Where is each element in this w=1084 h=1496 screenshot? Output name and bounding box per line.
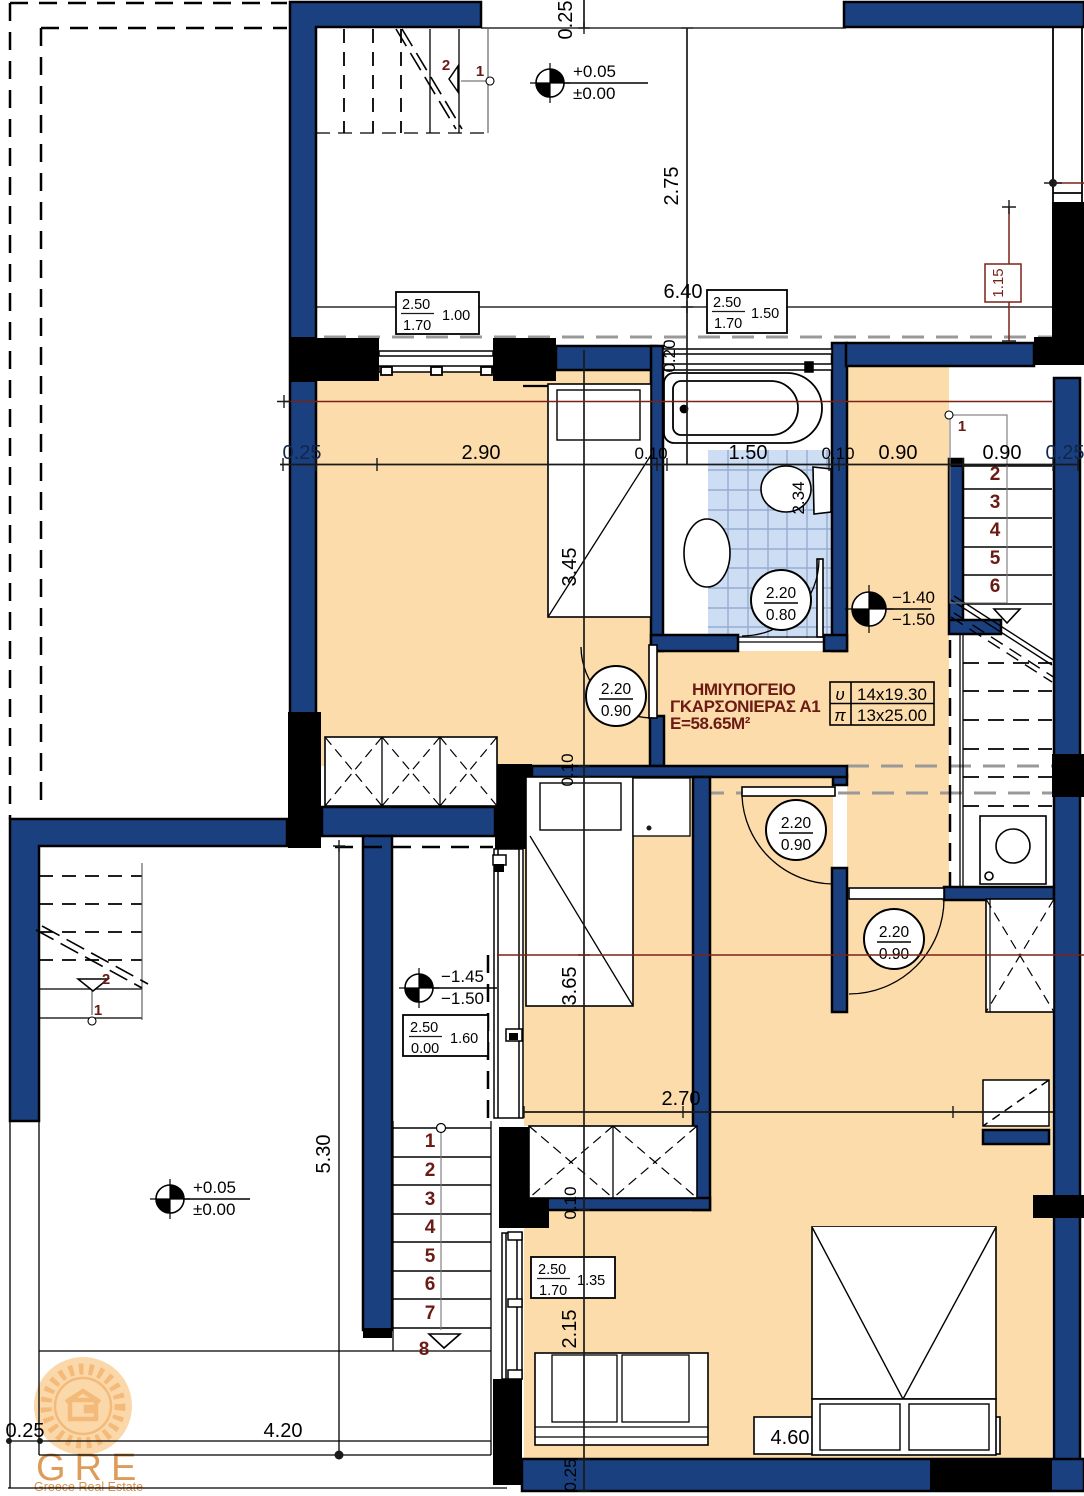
svg-text:1: 1 (425, 1131, 436, 1152)
svg-text:1.70: 1.70 (403, 318, 431, 334)
svg-text:6.40: 6.40 (664, 281, 703, 303)
svg-text:1.70: 1.70 (714, 316, 742, 332)
svg-text:1.35: 1.35 (577, 1273, 605, 1289)
svg-text:±0.00: ±0.00 (193, 1200, 235, 1219)
svg-text:5: 5 (990, 548, 1001, 569)
svg-text:1.15: 1.15 (990, 268, 1007, 297)
svg-text:4: 4 (425, 1217, 436, 1238)
svg-text:2.50: 2.50 (713, 295, 741, 311)
svg-text:3: 3 (425, 1189, 436, 1210)
svg-text:1.50: 1.50 (751, 306, 779, 322)
svg-text:0.25: 0.25 (561, 1458, 580, 1491)
svg-text:0.25: 0.25 (555, 1, 577, 40)
svg-text:2: 2 (990, 464, 1001, 485)
svg-text:2: 2 (425, 1160, 436, 1181)
svg-text:2: 2 (442, 57, 450, 74)
svg-text:0.25: 0.25 (283, 442, 322, 464)
svg-text:0.00: 0.00 (411, 1041, 439, 1057)
svg-text:0.90: 0.90 (879, 442, 918, 464)
svg-text:7: 7 (425, 1303, 436, 1324)
svg-text:Greece Real Estate: Greece Real Estate (34, 1480, 143, 1494)
svg-text:4.60: 4.60 (771, 1427, 810, 1449)
svg-text:2.20: 2.20 (879, 924, 910, 941)
svg-text:14x19.30: 14x19.30 (857, 685, 927, 704)
svg-text:2.15: 2.15 (559, 1310, 581, 1349)
svg-text:1.00: 1.00 (442, 308, 470, 324)
svg-text:0.10: 0.10 (558, 753, 577, 786)
svg-text:0.80: 0.80 (766, 607, 797, 624)
svg-text:4.20: 4.20 (264, 1420, 303, 1442)
svg-text:2.50: 2.50 (402, 297, 430, 313)
svg-text:0.90: 0.90 (781, 837, 812, 854)
svg-text:2.20: 2.20 (601, 681, 632, 698)
svg-text:0.10: 0.10 (561, 1186, 580, 1219)
svg-text:2: 2 (102, 971, 110, 988)
svg-text:π: π (834, 706, 846, 725)
svg-text:13x25.00: 13x25.00 (857, 706, 927, 725)
svg-text:υ: υ (835, 685, 844, 704)
svg-text:6: 6 (990, 576, 1001, 597)
svg-text:0.25: 0.25 (1046, 442, 1084, 464)
svg-text:2.20: 2.20 (781, 815, 812, 832)
svg-text:−1.50: −1.50 (441, 989, 484, 1008)
svg-text:−1.45: −1.45 (441, 967, 484, 986)
svg-text:0.10: 0.10 (821, 444, 854, 463)
svg-text:−1.40: −1.40 (892, 588, 935, 607)
svg-text:−1.50: −1.50 (892, 610, 935, 629)
svg-text:1.60: 1.60 (450, 1031, 478, 1047)
svg-text:+0.05: +0.05 (193, 1178, 236, 1197)
svg-text:0.90: 0.90 (601, 703, 632, 720)
svg-text:1.50: 1.50 (729, 442, 768, 464)
svg-text:+0.05: +0.05 (573, 62, 616, 81)
svg-text:0.20: 0.20 (660, 339, 679, 372)
svg-text:3.45: 3.45 (559, 548, 581, 587)
svg-text:2.50: 2.50 (538, 1262, 566, 1278)
svg-text:E=58.65M²: E=58.65M² (670, 714, 751, 733)
svg-text:2.34: 2.34 (789, 481, 808, 514)
svg-text:0.90: 0.90 (983, 442, 1022, 464)
svg-text:3: 3 (990, 492, 1001, 513)
svg-text:±0.00: ±0.00 (573, 84, 615, 103)
svg-text:2.70: 2.70 (662, 1088, 701, 1110)
svg-text:1: 1 (94, 1002, 102, 1019)
svg-text:2.90: 2.90 (462, 442, 501, 464)
svg-text:0.10: 0.10 (634, 444, 667, 463)
svg-text:1: 1 (476, 63, 484, 80)
svg-text:1.70: 1.70 (539, 1283, 567, 1299)
svg-text:2.50: 2.50 (410, 1020, 438, 1036)
svg-text:1: 1 (958, 418, 966, 435)
svg-text:5: 5 (425, 1246, 436, 1267)
svg-text:3.65: 3.65 (559, 967, 581, 1006)
svg-text:8: 8 (419, 1339, 430, 1360)
svg-text:2.20: 2.20 (766, 585, 797, 602)
svg-text:5.30: 5.30 (313, 1135, 335, 1174)
svg-text:6: 6 (425, 1274, 436, 1295)
svg-text:2.75: 2.75 (661, 167, 683, 206)
svg-text:4: 4 (990, 520, 1001, 541)
